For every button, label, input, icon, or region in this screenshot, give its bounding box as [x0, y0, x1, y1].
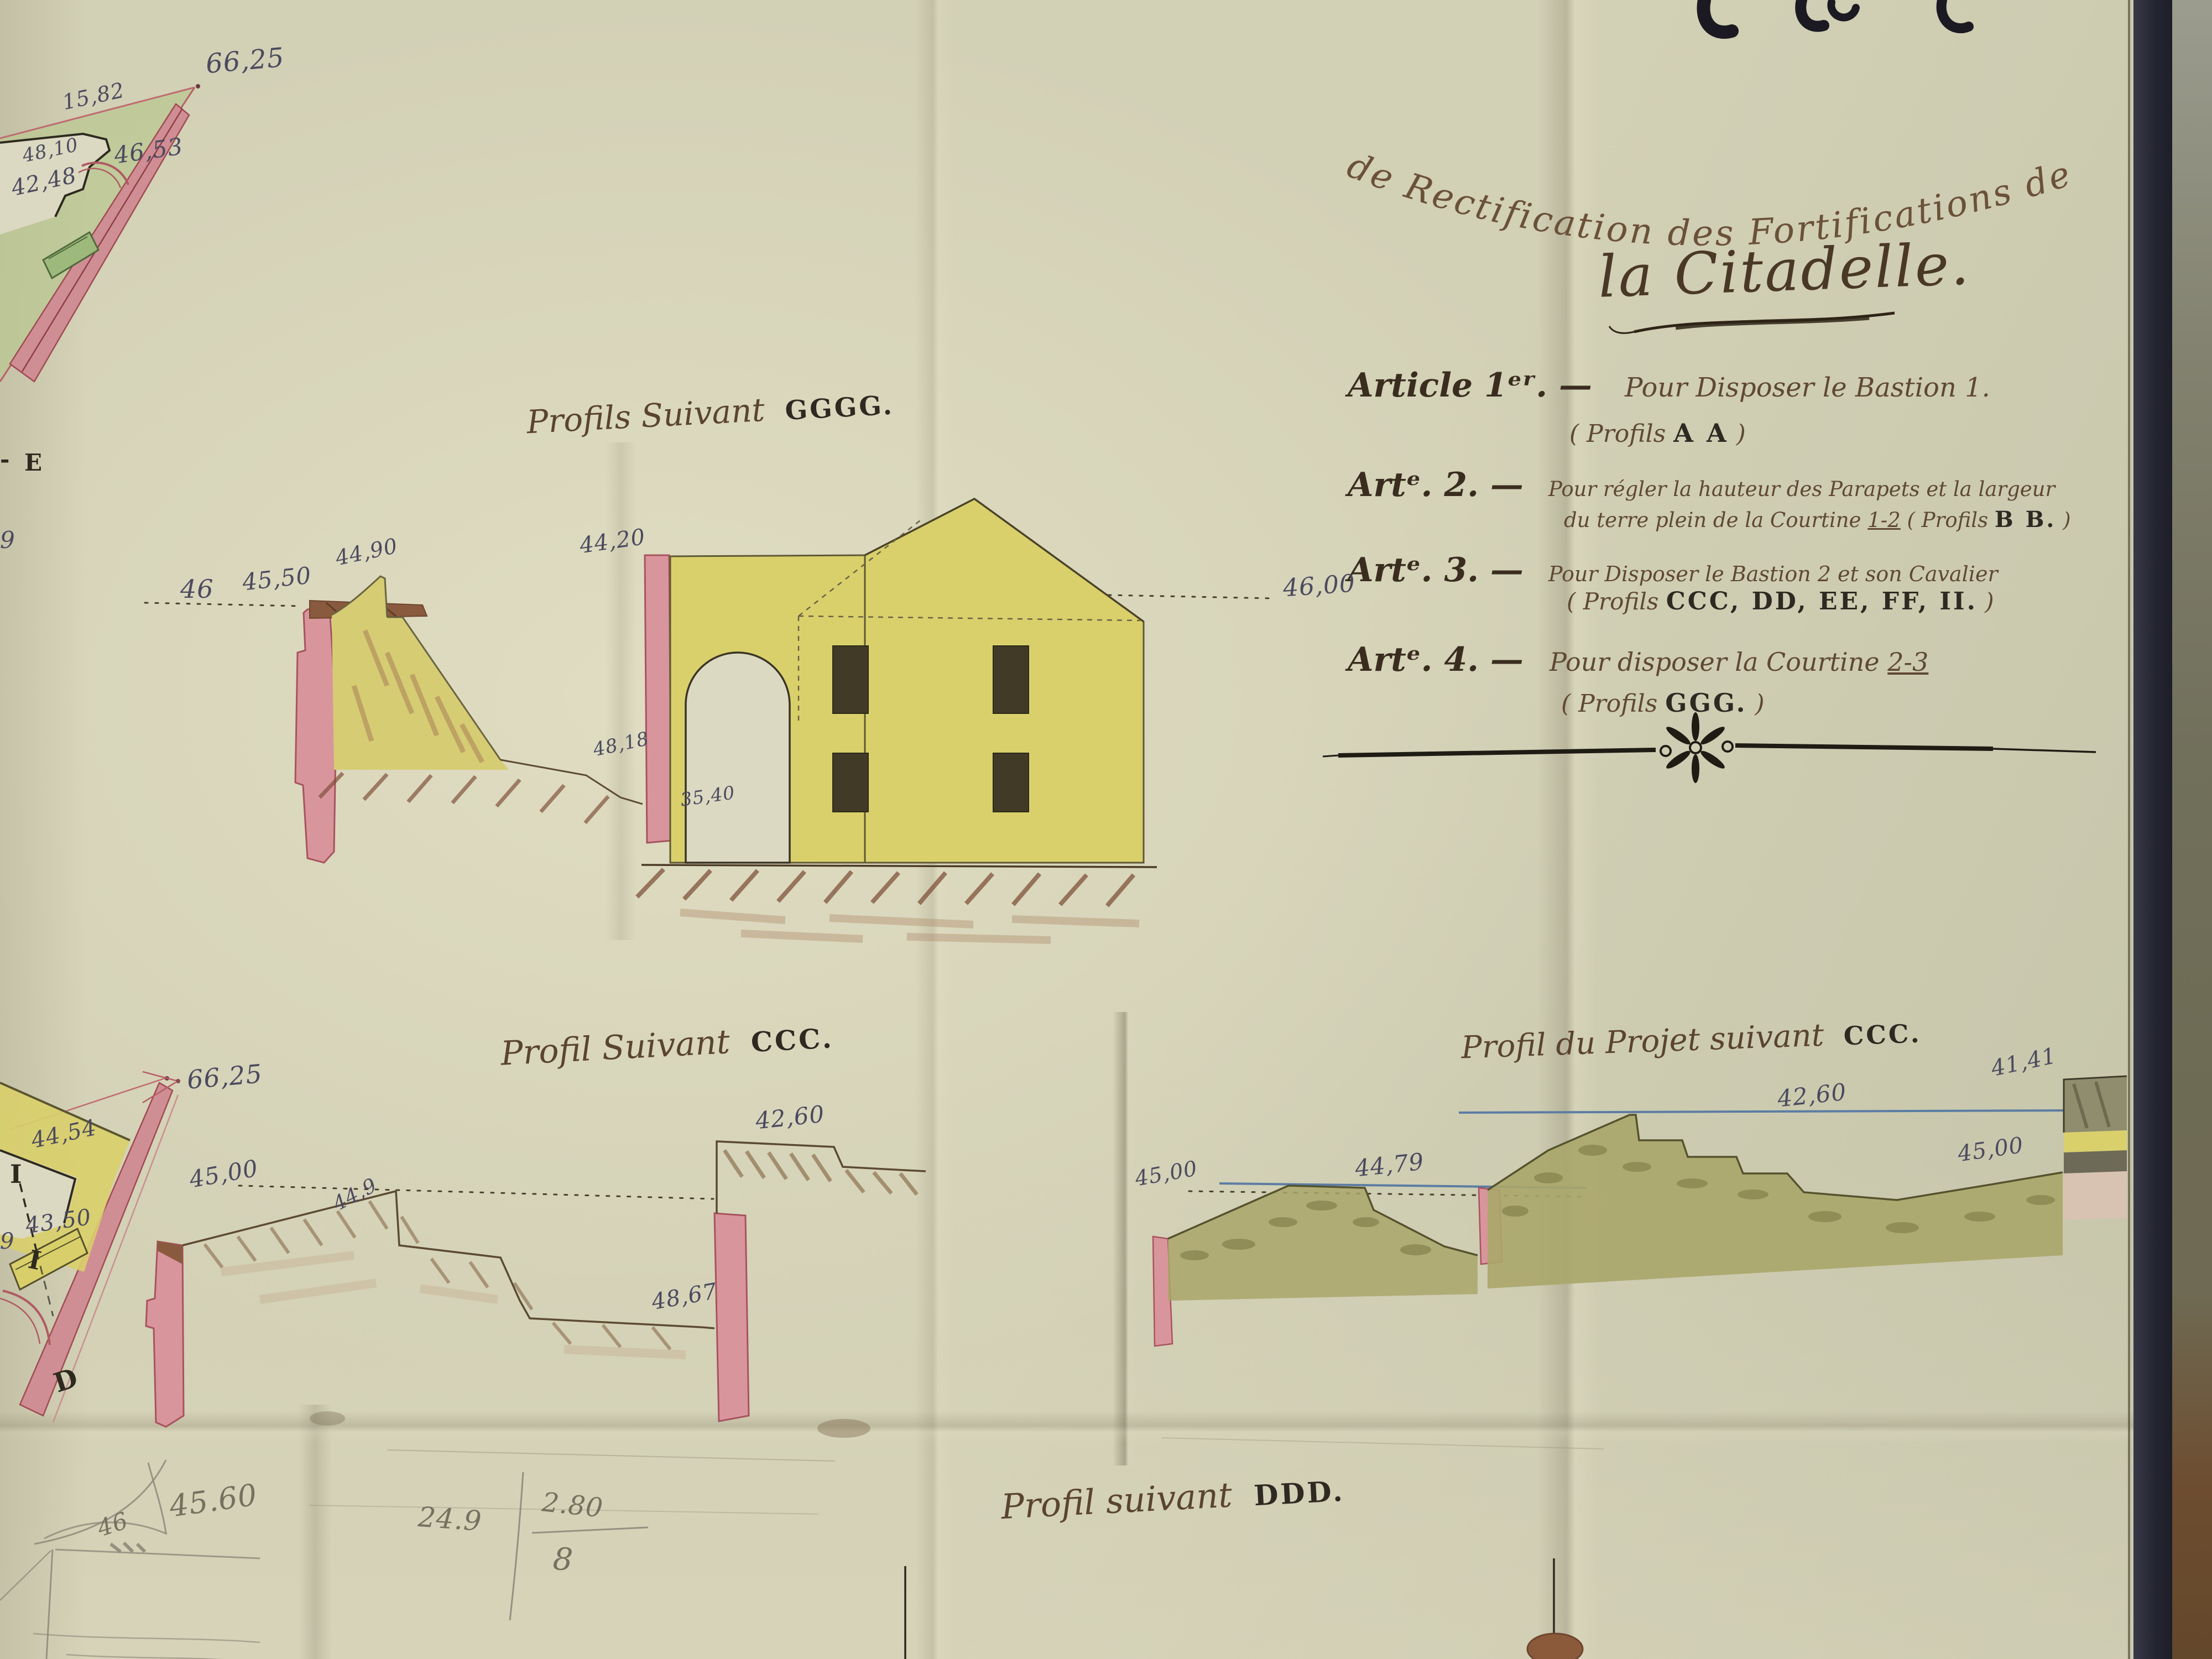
- section-letter-dash: -: [0, 446, 12, 473]
- article-4-sub-caps: GGG.: [1665, 688, 1747, 718]
- ground-hatch-building: [637, 869, 1134, 906]
- profile-ccc-projet-drawing: [1153, 1076, 2127, 1449]
- wall-pink-building: [645, 555, 671, 843]
- page-title: la Citadelle.: [1597, 230, 1971, 310]
- ccc-platform-hatch: [724, 1150, 917, 1194]
- background-table-edge: [2172, 0, 2212, 1659]
- edge-number-9: 9: [0, 526, 15, 554]
- article-2-text: Pour régler la hauteur des Parapets et l…: [1548, 477, 2055, 501]
- paper-border-line: [2128, 0, 2130, 1659]
- article-1-sub-pre: ( Profils: [1569, 420, 1673, 448]
- article-2-sub-mid: ( Profils: [1901, 508, 1995, 532]
- caption-ccc-caps: CCC.: [750, 1022, 834, 1058]
- article-4-sub: ( Profils GGG. ): [1561, 688, 1765, 718]
- window: [993, 753, 1029, 812]
- article-4-sub-pre: ( Profils: [1561, 690, 1665, 718]
- pencil-24-9: 24.9: [417, 1501, 483, 1537]
- pencil-division-bar: [510, 1472, 523, 1620]
- article-2-sub-caps: B B.: [1995, 507, 2056, 533]
- projet-water-line-42: [1459, 1110, 2071, 1113]
- article-4-label: Artᵉ. 4. —: [1348, 640, 1524, 679]
- article-row-4: Artᵉ. 4. — Pour disposer la Courtine 2-3: [1348, 640, 1928, 679]
- article-2-label: Artᵉ. 2. —: [1348, 466, 1524, 504]
- section-letter-e: E: [24, 449, 44, 476]
- window: [993, 646, 1029, 713]
- article-3-text: Pour Disposer le Bastion 2 et son Cavali…: [1548, 562, 1998, 586]
- projet-glacis-block: [2064, 1076, 2127, 1220]
- caption-projet-caps: CCC.: [1843, 1018, 1922, 1051]
- ccc-wall-right: [714, 1213, 749, 1421]
- divider-ornament: [1323, 712, 2096, 783]
- ccc-terrain-line: [182, 1191, 714, 1328]
- article-row-2: Artᵉ. 2. — Pour régler la hauteur des Pa…: [1348, 466, 2055, 504]
- ccc-wall-left: [146, 1241, 184, 1427]
- article-4-sub-post: ): [1747, 690, 1765, 718]
- article-1-label: Article 1ᵉʳ. —: [1348, 366, 1592, 405]
- ground-line-building: [641, 865, 1157, 867]
- profile-ddd-drawing: [905, 1558, 1583, 1659]
- ground-line-left: [500, 760, 643, 804]
- article-2-sub: du terre plein de la Courtine 1-2 ( Prof…: [1564, 507, 2071, 533]
- article-row-1: Article 1ᵉʳ. — Pour Disposer le Bastion …: [1348, 366, 1990, 405]
- section-letter-i1: I: [10, 1159, 24, 1189]
- datum-line-45: [239, 1186, 713, 1199]
- datum-line-46-right: [1108, 595, 1273, 598]
- caption-ddd-caps: DDD.: [1253, 1474, 1345, 1512]
- article-1-sub-post: ): [1729, 420, 1746, 448]
- datum-line-46-left: [145, 603, 301, 606]
- article-2-sub-post: ): [2056, 508, 2070, 532]
- caption-gggg-caps: GGGG.: [784, 390, 895, 426]
- article-row-3: Artᵉ. 3. — Pour Disposer le Bastion 2 et…: [1348, 551, 1998, 589]
- measure-46-00: 46,00: [1282, 569, 1356, 602]
- article-4-text: Pour disposer la Courtine: [1550, 647, 1887, 677]
- window: [833, 646, 868, 713]
- cutoff-title-strokes: [1703, 0, 1969, 32]
- pencil-2-80: 2.80: [540, 1486, 604, 1524]
- map2-number-9: 9: [0, 1229, 14, 1254]
- ground-wash: [680, 912, 1139, 940]
- wall-pink-left: [295, 607, 336, 863]
- article-3-sub-caps: CCC, DD, EE, FF, II.: [1666, 587, 1978, 615]
- portfolio-cover-edge: [2133, 0, 2172, 1659]
- article-3-sub-pre: ( Profils: [1567, 588, 1666, 615]
- article-2-sub-pre: du terre plein de la Courtine: [1564, 508, 1867, 532]
- pencil-8: 8: [552, 1541, 575, 1578]
- photograph-of-fortification-plan: de Rectification des Fortifications de l…: [0, 0, 2212, 1659]
- profile-ccc-drawing: [143, 1072, 926, 1514]
- map-fragment-top-left: [0, 84, 200, 382]
- article-4-text-ref: 2-3: [1887, 647, 1928, 677]
- article-1-text: Pour Disposer le Bastion 1.: [1625, 372, 1990, 403]
- profile-ggg-drawing: [145, 499, 1273, 940]
- article-3-sub-post: ): [1978, 588, 1994, 615]
- ccc-slope-hatch: [205, 1201, 670, 1349]
- article-3-sub: ( Profils CCC, DD, EE, FF, II. ): [1567, 587, 1994, 615]
- measure-46: 46: [180, 574, 214, 604]
- article-1-sub: ( Profils A A ): [1569, 418, 1746, 448]
- article-1-sub-caps: A A: [1673, 418, 1728, 448]
- article-3-label: Artᵉ. 3. —: [1348, 551, 1524, 589]
- flower-ornament: [1661, 712, 1733, 783]
- ground-hatch-left: [320, 773, 608, 823]
- article-2-sub-ref: 1-2: [1867, 508, 1901, 532]
- ddd-earth-blob: [1527, 1634, 1583, 1659]
- title-flourish: [1609, 313, 1895, 333]
- arch-opening: [686, 653, 790, 863]
- window: [833, 753, 868, 812]
